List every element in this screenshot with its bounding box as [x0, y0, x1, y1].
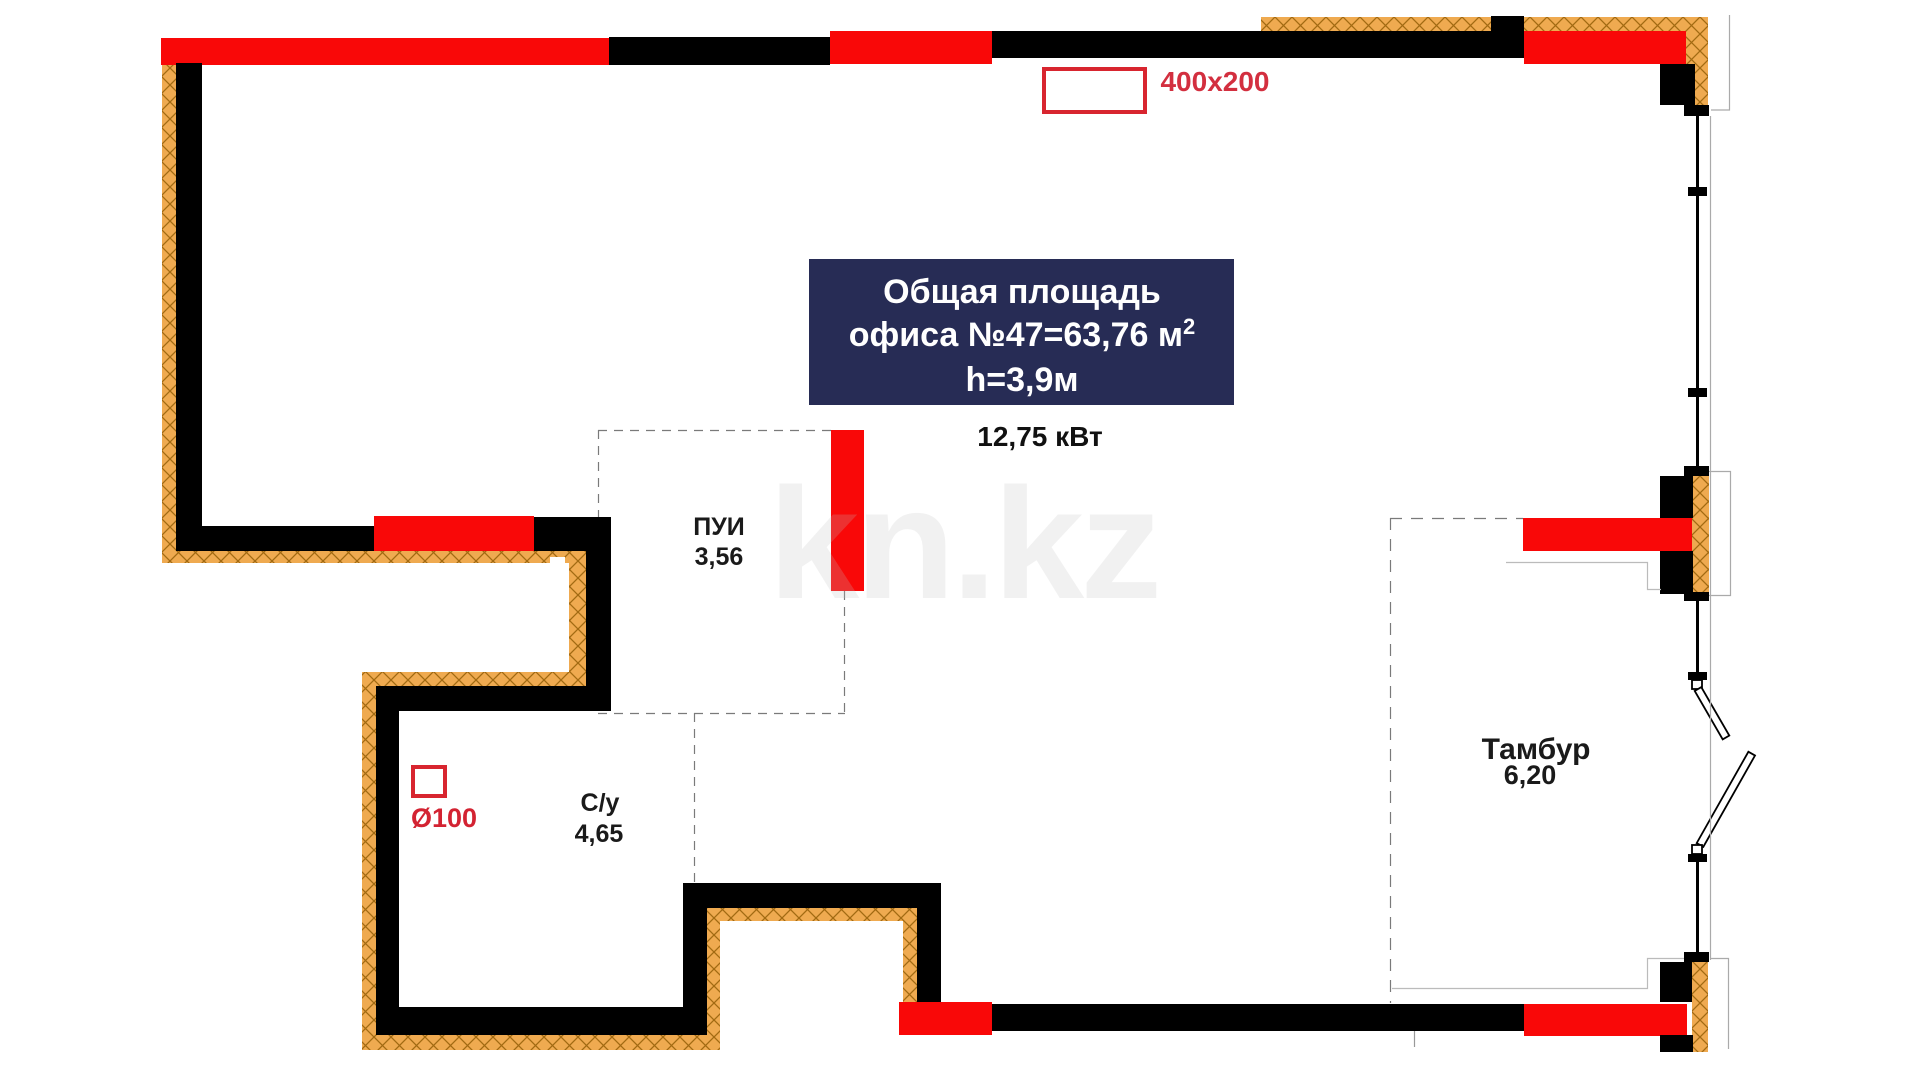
svg-text:3,56: 3,56	[695, 543, 744, 571]
svg-text:офиса №47=63,76 м2: офиса №47=63,76 м2	[849, 314, 1196, 354]
svg-text:С/у: С/у	[581, 789, 620, 817]
svg-text:12,75 кВт: 12,75 кВт	[977, 421, 1102, 452]
svg-text:Общая площадь: Общая площадь	[883, 273, 1161, 311]
svg-text:kn.kz: kn.kz	[768, 456, 1158, 632]
svg-text:Ø100: Ø100	[411, 803, 477, 833]
svg-text:400x200: 400x200	[1160, 66, 1269, 97]
svg-text:6,20: 6,20	[1504, 760, 1557, 790]
svg-text:h=3,9м: h=3,9м	[965, 361, 1078, 399]
svg-text:ПУИ: ПУИ	[693, 513, 745, 541]
svg-text:4,65: 4,65	[575, 820, 624, 848]
